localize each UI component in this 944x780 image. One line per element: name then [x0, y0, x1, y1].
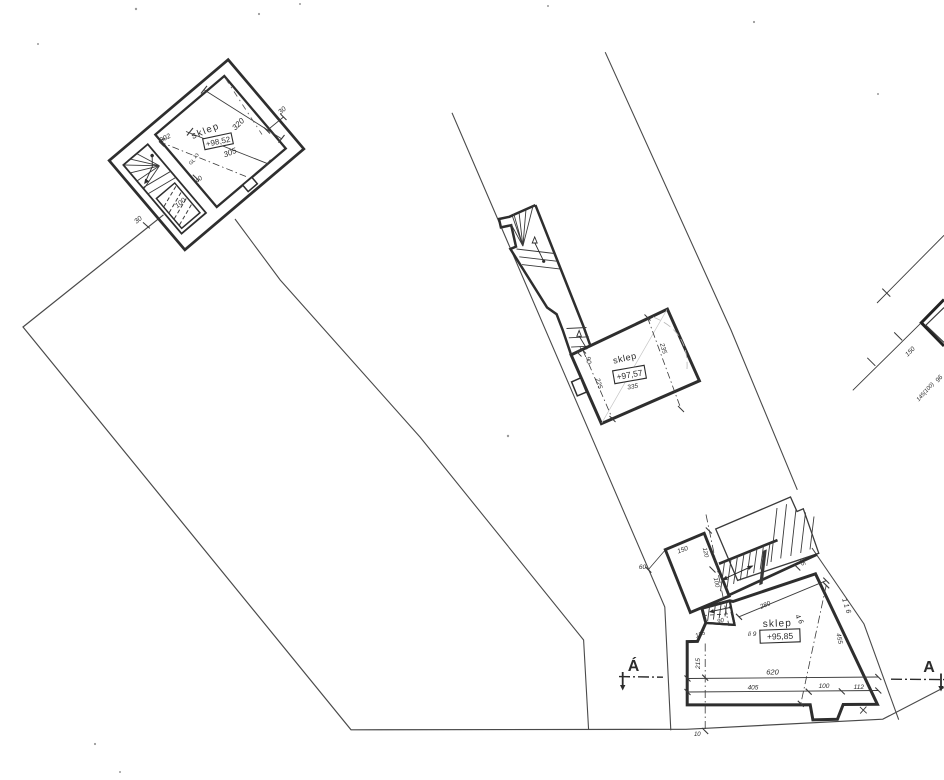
svg-text:405: 405: [748, 685, 759, 692]
svg-text:112: 112: [854, 684, 865, 691]
svg-text:10: 10: [694, 732, 701, 738]
svg-text:li 9: li 9: [748, 631, 757, 638]
svg-text:620: 620: [766, 668, 779, 677]
svg-text:215: 215: [695, 658, 702, 670]
svg-text:60: 60: [639, 564, 647, 571]
svg-text:A: A: [923, 659, 935, 676]
svg-text:100: 100: [819, 683, 830, 690]
svg-text:sklep: sklep: [763, 618, 793, 630]
svg-text:+95,85: +95,85: [767, 631, 794, 642]
svg-text:Á: Á: [628, 656, 640, 675]
